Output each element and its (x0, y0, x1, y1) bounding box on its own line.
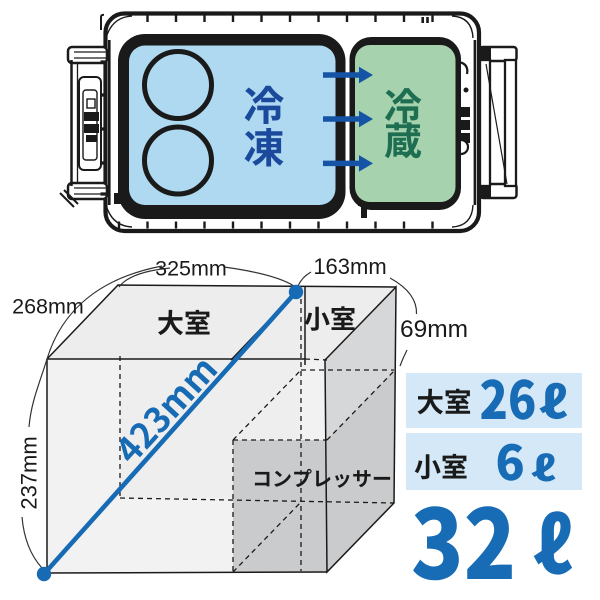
svg-text:69mm: 69mm (400, 316, 468, 343)
svg-text:325mm: 325mm (155, 257, 227, 281)
svg-text:268mm: 268mm (12, 295, 84, 319)
svg-text:163mm: 163mm (313, 254, 386, 279)
svg-text:237mm: 237mm (17, 436, 42, 509)
